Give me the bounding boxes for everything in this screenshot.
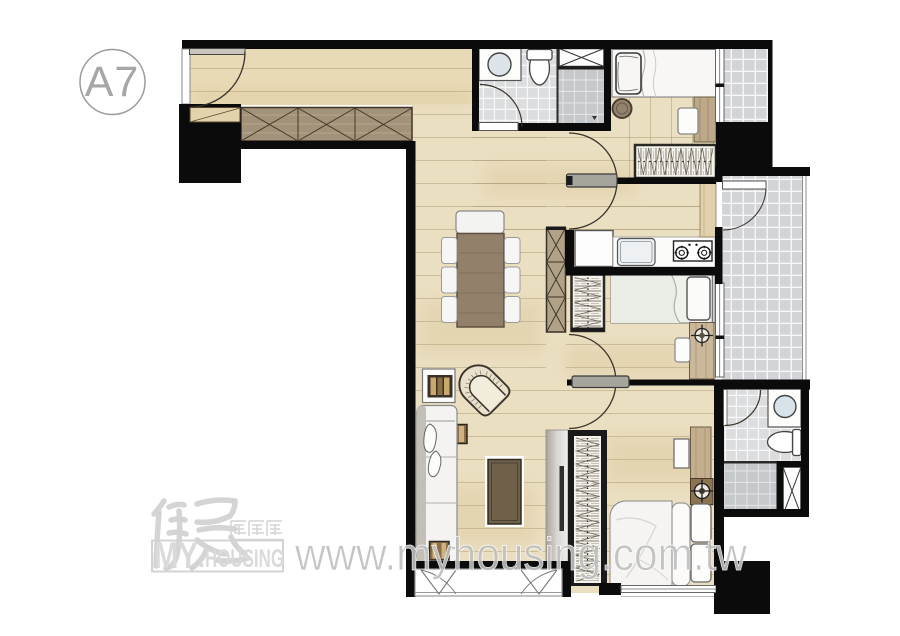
svg-text:HOUSING: HOUSING — [205, 545, 284, 573]
svg-text:www.myhousing.com.tw: www.myhousing.com.tw — [294, 528, 748, 580]
svg-text:A7: A7 — [85, 58, 140, 106]
svg-text:MY: MY — [154, 535, 198, 576]
